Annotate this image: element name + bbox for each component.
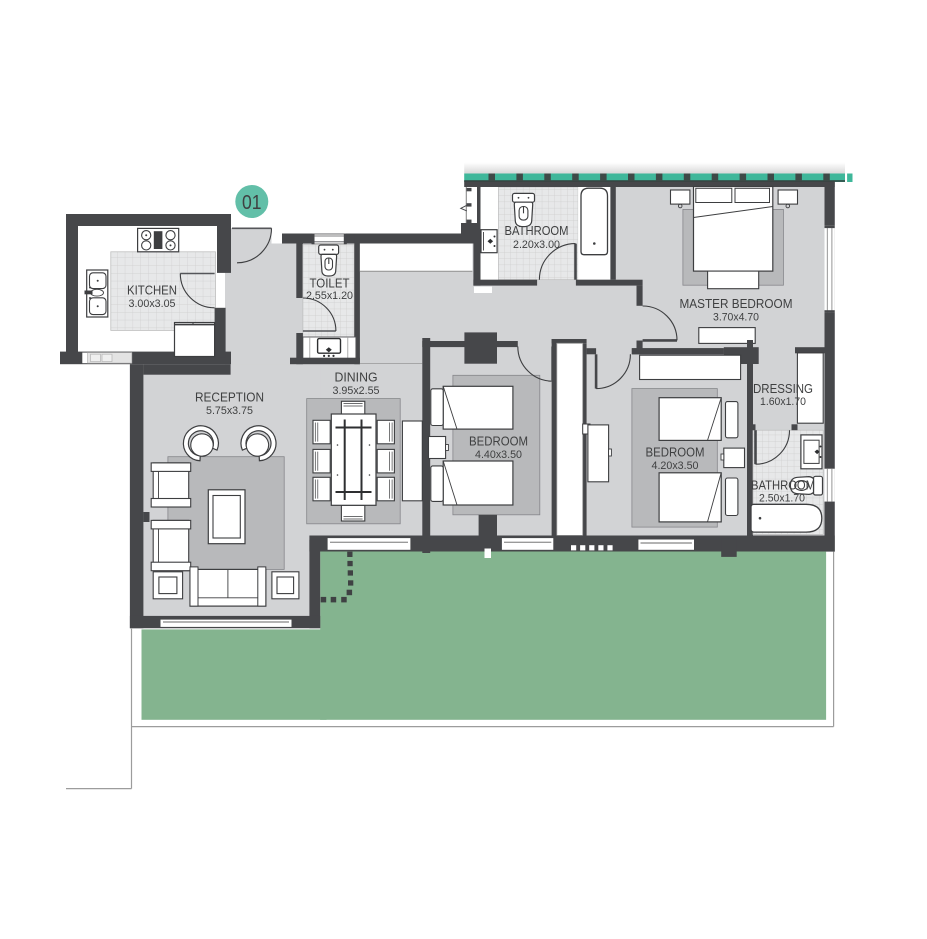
svg-text:DRESSING: DRESSING	[753, 381, 813, 396]
svg-text:01: 01	[242, 192, 262, 214]
svg-text:4.40x3.50: 4.40x3.50	[475, 449, 522, 461]
svg-text:5.75x3.75: 5.75x3.75	[206, 405, 253, 417]
svg-text:RECEPTION: RECEPTION	[195, 390, 264, 405]
svg-text:BEDROOM: BEDROOM	[469, 434, 528, 449]
svg-text:2.55x1.20: 2.55x1.20	[306, 290, 353, 302]
svg-text:DINING: DINING	[335, 370, 378, 385]
svg-text:1.60x1.70: 1.60x1.70	[760, 396, 806, 408]
svg-text:MASTER BEDROOM: MASTER BEDROOM	[680, 296, 793, 311]
svg-text:3.95x2.55: 3.95x2.55	[333, 385, 380, 397]
svg-text:KITCHEN: KITCHEN	[127, 283, 177, 298]
svg-text:TOILET: TOILET	[310, 276, 350, 291]
svg-text:4.20x3.50: 4.20x3.50	[652, 460, 699, 472]
svg-text:BEDROOM: BEDROOM	[646, 445, 705, 460]
svg-text:3.00x3.05: 3.00x3.05	[129, 298, 176, 310]
svg-text:2.20x3.00: 2.20x3.00	[513, 239, 560, 251]
svg-text:BATHROOM: BATHROOM	[751, 478, 815, 493]
svg-text:BATHROOM: BATHROOM	[505, 223, 569, 238]
svg-text:2.50x1.70: 2.50x1.70	[759, 493, 805, 505]
svg-text:3.70x4.70: 3.70x4.70	[713, 312, 759, 324]
